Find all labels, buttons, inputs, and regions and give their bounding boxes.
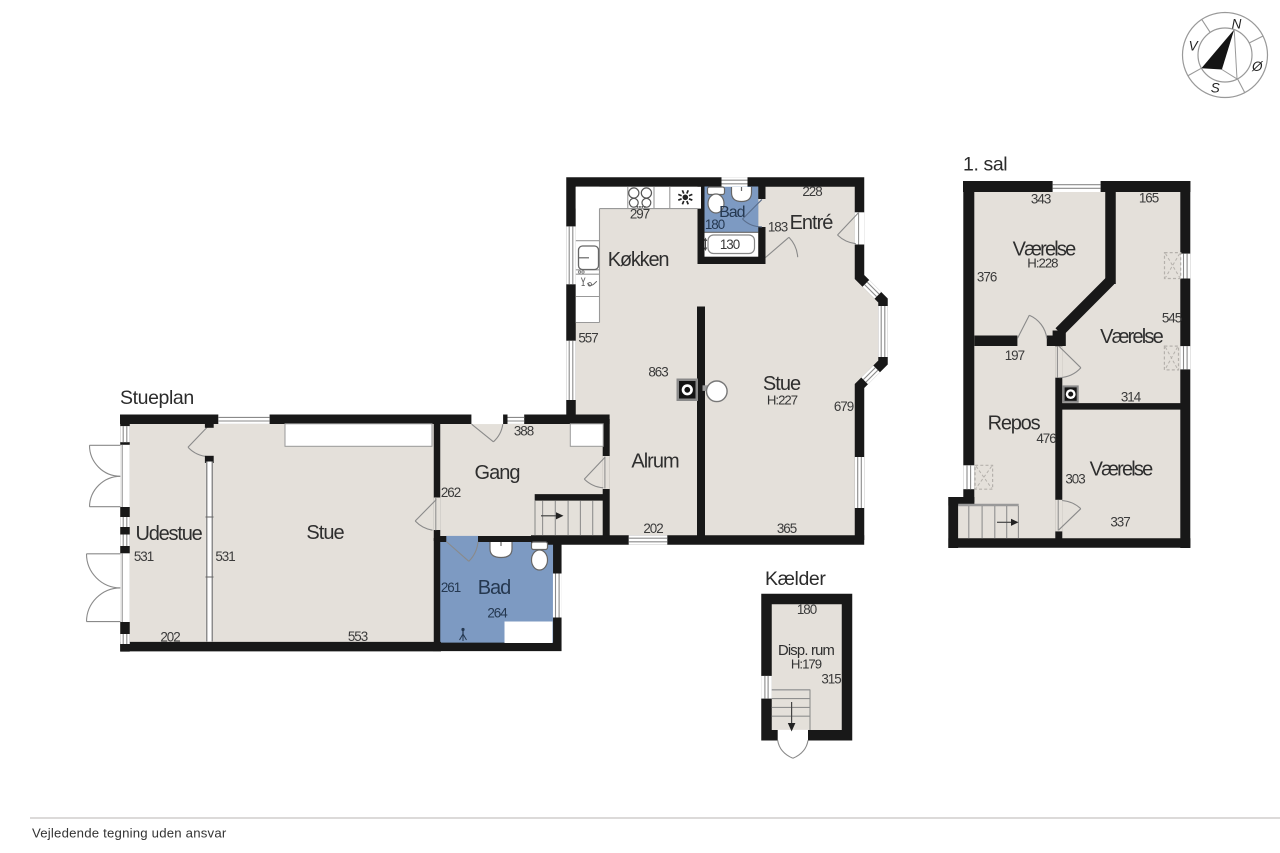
svg-text:Repos: Repos (988, 413, 1041, 435)
svg-text:Entré: Entré (790, 212, 834, 234)
svg-text:261: 261 (441, 580, 461, 595)
svg-text:180: 180 (705, 217, 725, 232)
svg-text:303: 303 (1065, 472, 1085, 487)
svg-text:Bad: Bad (478, 577, 511, 599)
svg-text:130: 130 (720, 237, 740, 252)
svg-text:Kælder: Kælder (765, 568, 826, 590)
svg-text:531: 531 (215, 549, 235, 564)
svg-text:183: 183 (768, 220, 788, 235)
svg-text:314: 314 (1121, 390, 1142, 405)
svg-text:343: 343 (1031, 192, 1051, 207)
svg-text:228: 228 (802, 184, 822, 199)
svg-text:376: 376 (977, 270, 997, 285)
svg-text:679: 679 (834, 399, 854, 414)
svg-text:Værelse: Værelse (1100, 326, 1164, 348)
svg-text:337: 337 (1110, 515, 1130, 530)
svg-text:553: 553 (348, 629, 368, 644)
svg-text:297: 297 (630, 207, 650, 222)
svg-text:Udestue: Udestue (135, 523, 202, 545)
svg-text:N: N (1232, 17, 1242, 32)
svg-text:197: 197 (1005, 348, 1025, 363)
svg-text:1. sal: 1. sal (963, 154, 1007, 176)
svg-text:H:179: H:179 (791, 657, 822, 672)
svg-text:262: 262 (441, 485, 461, 500)
svg-text:S: S (1211, 81, 1220, 96)
svg-text:531: 531 (134, 549, 154, 564)
svg-text:863: 863 (648, 365, 668, 380)
svg-text:557: 557 (578, 331, 598, 346)
svg-text:Værelse: Værelse (1090, 459, 1154, 481)
svg-text:476: 476 (1036, 431, 1056, 446)
svg-text:Stueplan: Stueplan (120, 387, 194, 409)
svg-text:Vejledende tegning uden ansvar: Vejledende tegning uden ansvar (32, 826, 227, 841)
svg-text:315: 315 (821, 672, 841, 687)
svg-text:Alrum: Alrum (631, 451, 679, 473)
svg-text:545: 545 (1162, 311, 1182, 326)
svg-text:365: 365 (777, 521, 797, 536)
svg-text:388: 388 (514, 424, 534, 439)
svg-text:202: 202 (643, 521, 663, 536)
svg-text:H:228: H:228 (1027, 256, 1058, 271)
svg-text:H:227: H:227 (767, 393, 798, 408)
svg-text:Køkken: Køkken (608, 249, 669, 271)
svg-text:202: 202 (160, 630, 180, 645)
svg-text:180: 180 (797, 602, 817, 617)
svg-text:264: 264 (487, 606, 508, 621)
svg-text:165: 165 (1139, 191, 1159, 206)
svg-text:Stue: Stue (306, 522, 344, 544)
svg-text:Gang: Gang (475, 462, 520, 484)
